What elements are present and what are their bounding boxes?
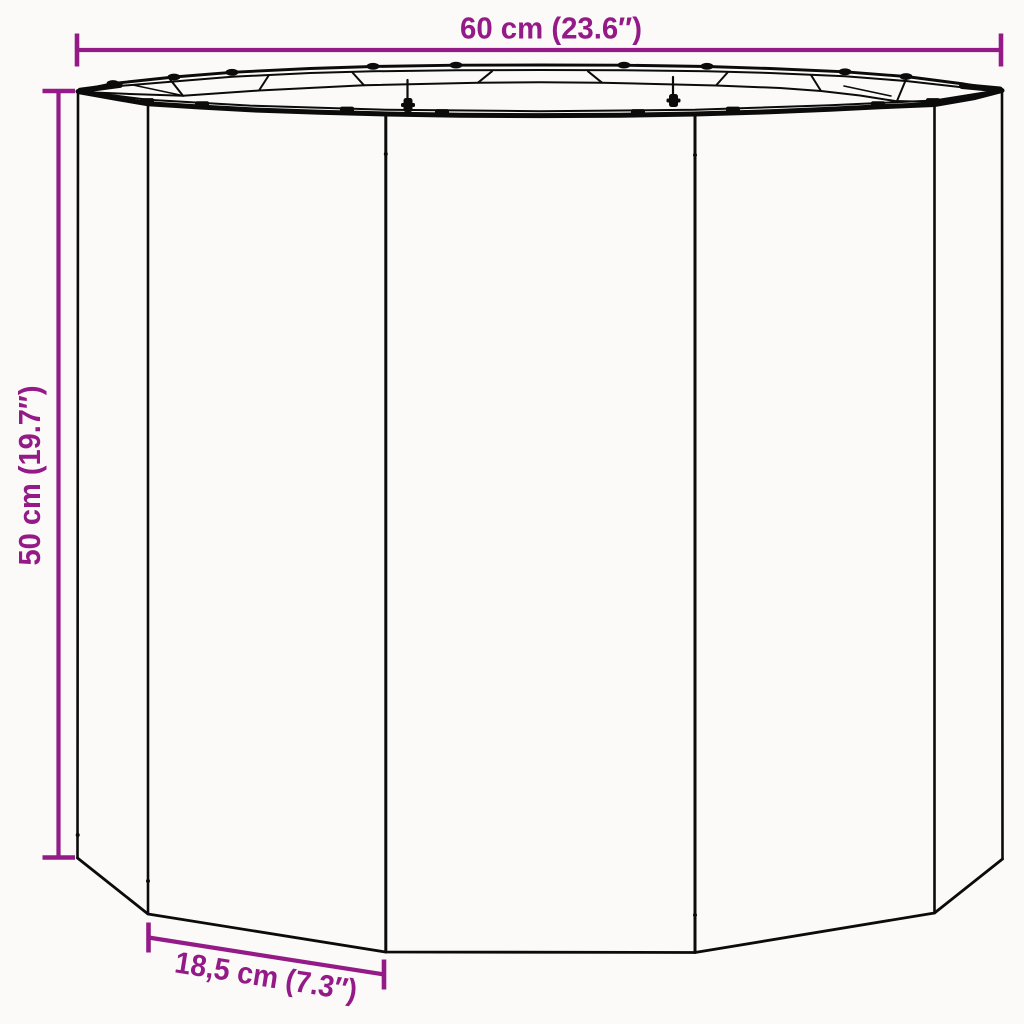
svg-text:50 cm (19.7″): 50 cm (19.7″) xyxy=(13,386,47,566)
svg-text:60 cm (23.6″): 60 cm (23.6″) xyxy=(460,12,642,46)
